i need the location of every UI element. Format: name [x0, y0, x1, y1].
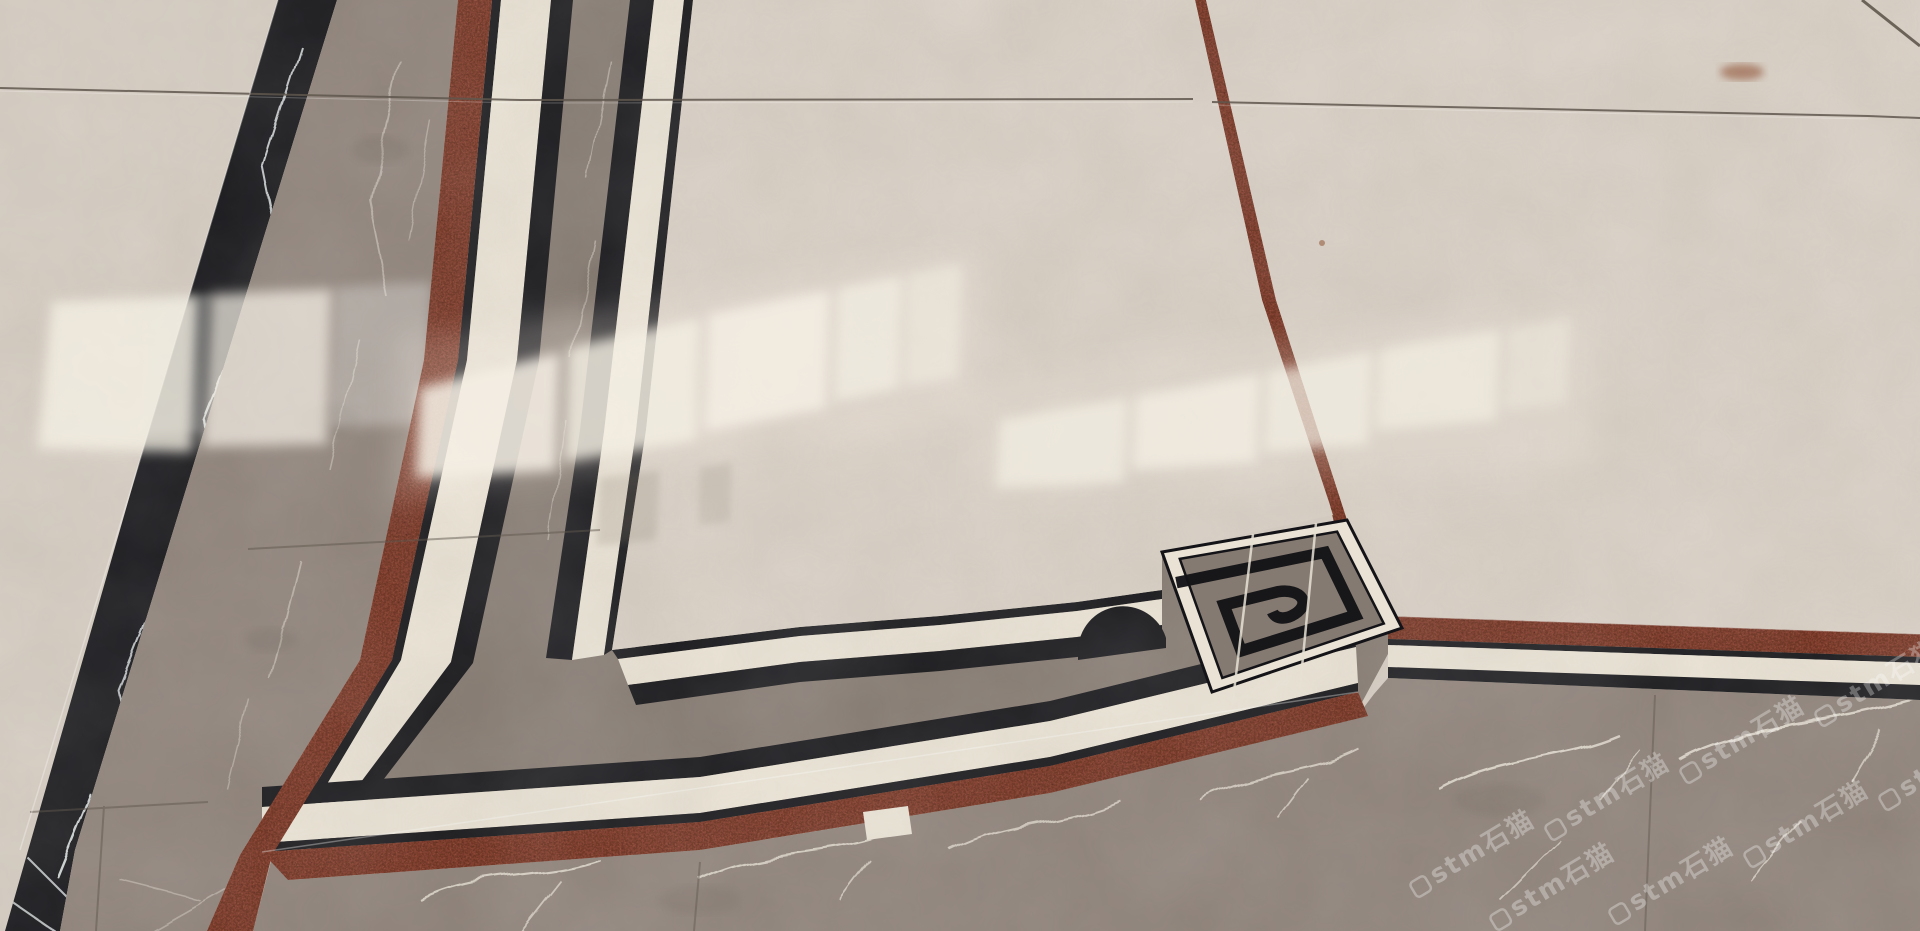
rust-stain: [1720, 64, 1764, 80]
object-reflection: [596, 470, 660, 546]
floor-scene: stm石猫stm石猫stm石猫stm石猫stm石猫stm石猫stm石猫stm石猫: [0, 0, 1920, 931]
center-reflection-pane: [834, 276, 902, 402]
small-stain-dot: [1319, 240, 1325, 246]
left-reflection-pane: [38, 296, 198, 452]
center-reflection-pane: [704, 290, 830, 432]
marble-floor-photo: stm石猫stm石猫stm石猫stm石猫stm石猫stm石猫stm石猫stm石猫: [0, 0, 1920, 931]
object-reflection: [698, 462, 732, 526]
center-reflection-pane: [904, 264, 962, 386]
right-reflection-pane: [1504, 318, 1570, 410]
left-reflection-pane: [202, 289, 332, 447]
